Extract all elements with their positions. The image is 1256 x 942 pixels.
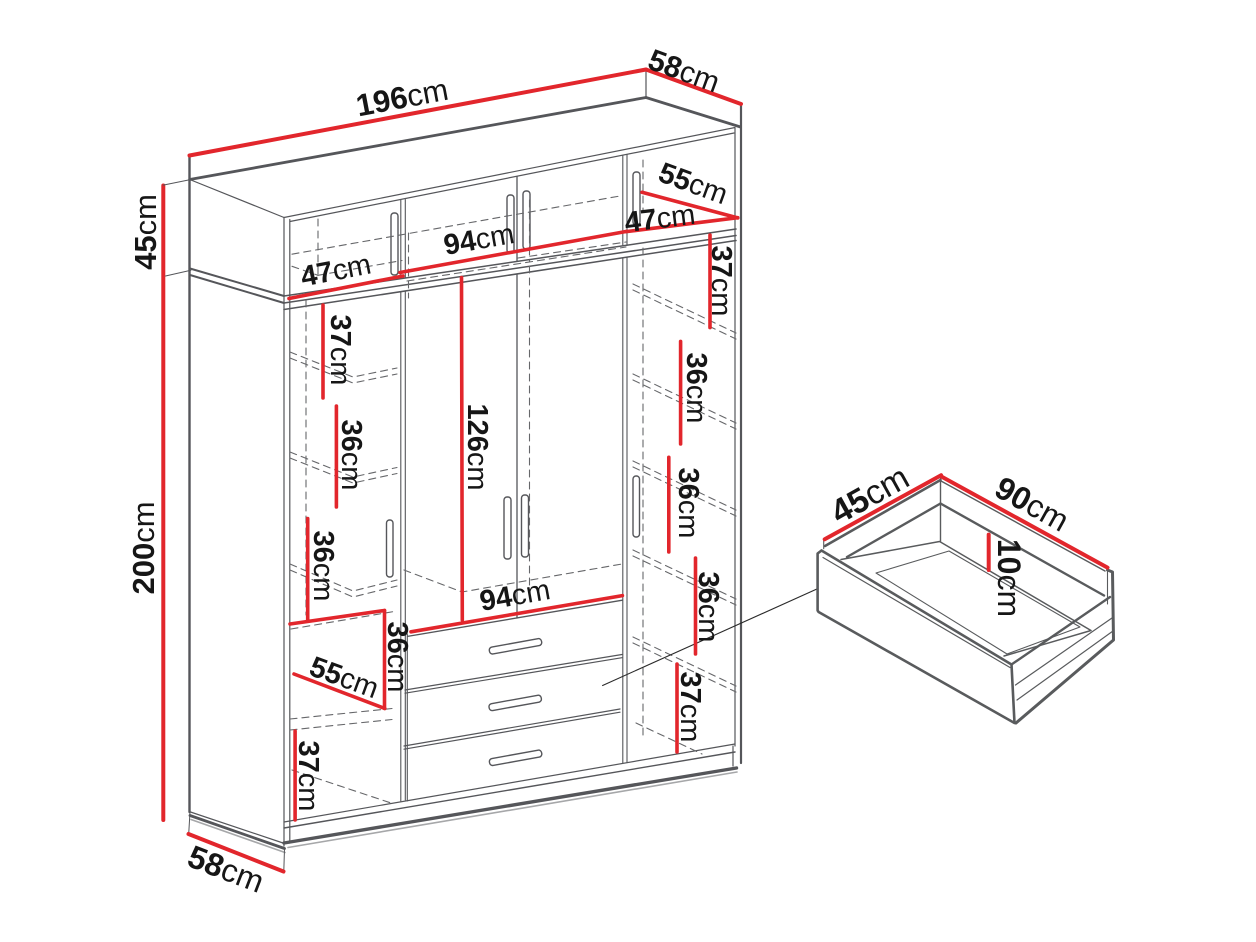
svg-text:200cm: 200cm bbox=[126, 501, 161, 594]
svg-text:126cm: 126cm bbox=[461, 403, 493, 490]
svg-text:37cm: 37cm bbox=[292, 741, 324, 812]
svg-text:36cm: 36cm bbox=[680, 353, 712, 424]
svg-text:37cm: 37cm bbox=[705, 246, 737, 317]
svg-text:36cm: 36cm bbox=[307, 531, 339, 602]
svg-text:10cm: 10cm bbox=[991, 539, 1027, 617]
svg-text:36cm: 36cm bbox=[692, 572, 724, 643]
svg-text:36cm: 36cm bbox=[672, 468, 704, 539]
svg-text:45cm: 45cm bbox=[128, 194, 163, 270]
svg-text:36cm: 36cm bbox=[381, 622, 413, 693]
svg-text:36cm: 36cm bbox=[335, 420, 367, 491]
svg-text:37cm: 37cm bbox=[324, 315, 356, 386]
svg-text:37cm: 37cm bbox=[674, 672, 706, 743]
